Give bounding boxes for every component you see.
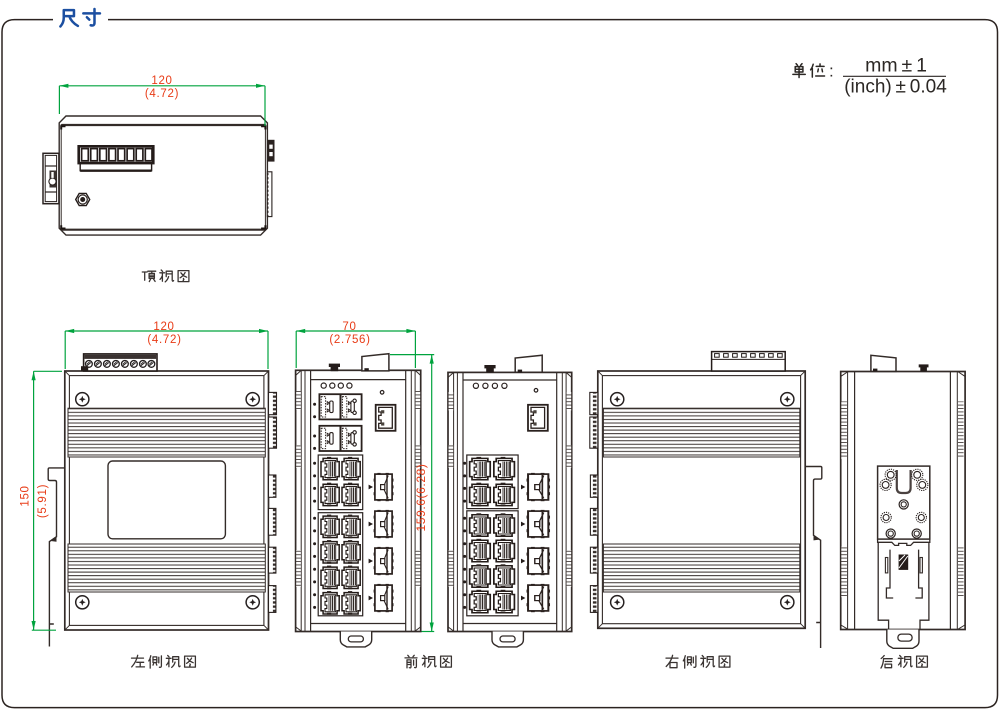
svg-text:150: 150 bbox=[20, 485, 32, 506]
svg-text:120: 120 bbox=[151, 75, 172, 87]
svg-text:120: 120 bbox=[153, 321, 174, 333]
svg-text:(2.756): (2.756) bbox=[329, 334, 370, 346]
svg-text:(4.72): (4.72) bbox=[147, 334, 181, 346]
svg-text::: : bbox=[829, 62, 834, 81]
svg-text:70: 70 bbox=[342, 321, 356, 333]
svg-text:(5.91): (5.91) bbox=[37, 484, 49, 518]
svg-text:mm ± 1: mm ± 1 bbox=[865, 55, 927, 77]
svg-text:(4.72): (4.72) bbox=[145, 88, 179, 100]
svg-text:(inch) ± 0.04: (inch) ± 0.04 bbox=[844, 77, 947, 98]
svg-text:159.6(6.28): 159.6(6.28) bbox=[414, 464, 428, 532]
